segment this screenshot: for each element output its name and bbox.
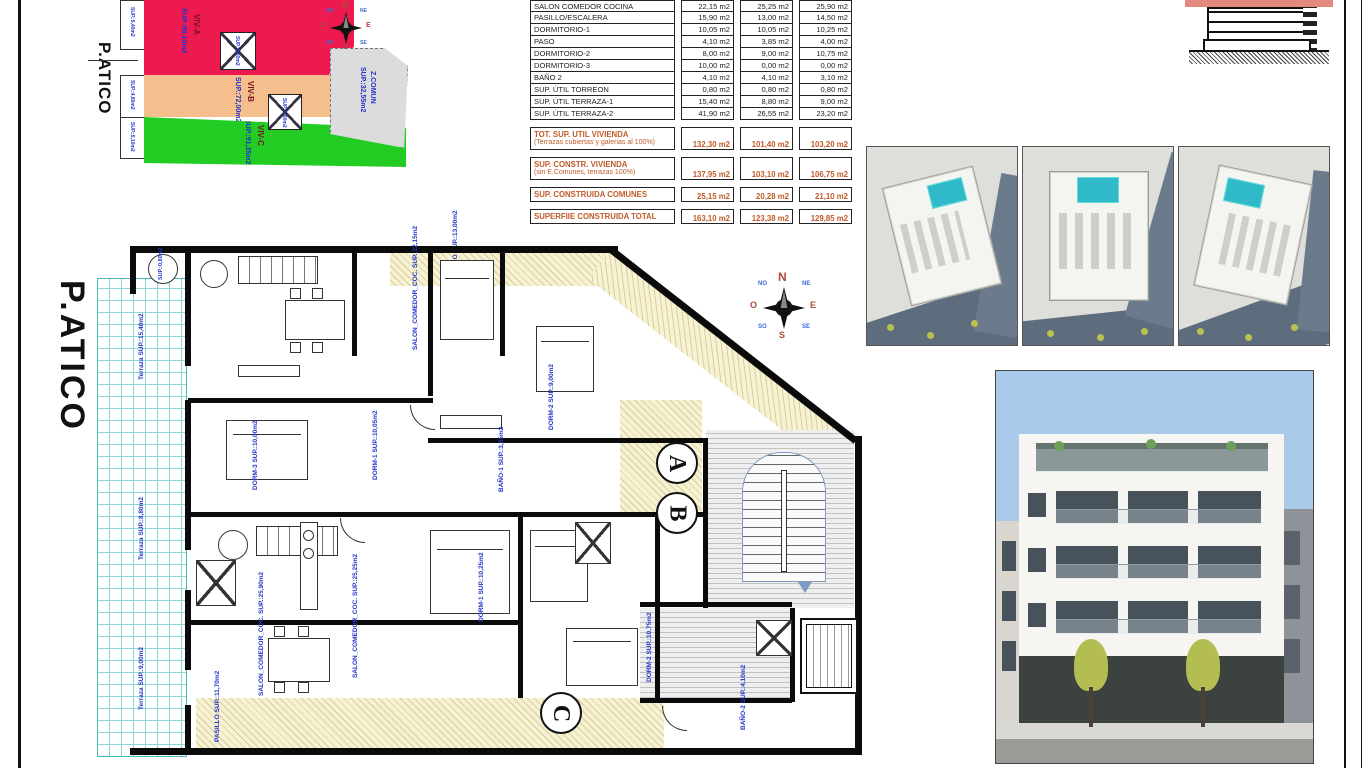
render-tree xyxy=(1047,330,1054,337)
section-floors xyxy=(1207,7,1307,43)
wall-segment xyxy=(703,438,708,608)
sheet-right-border xyxy=(1344,0,1346,768)
zone-viv-a-name: VIV-A xyxy=(192,14,201,35)
facade-tree-trunk xyxy=(1089,687,1093,727)
section-atico-highlight xyxy=(1185,0,1333,7)
zone-viv-a-sup: SUP.:98,10m2 xyxy=(180,8,187,53)
room-label: SALON_COMEDOR_COC. SUP.:22,15m2 xyxy=(412,226,419,350)
bed-icon xyxy=(226,420,308,480)
terrace-label: Terraza SUP.:15,40m2 xyxy=(138,313,145,380)
table-row: SUP. ÚTIL TORREON0,80 m20,80 m20,80 m2 xyxy=(530,84,852,96)
summary-value: 129,85 m2 xyxy=(799,209,852,224)
torreon-label: SUP.:0,80m2 xyxy=(158,247,164,280)
unit-mark-a: A xyxy=(656,442,698,484)
unit-mark-c: C xyxy=(540,692,582,734)
compass-n: N xyxy=(342,0,349,10)
zone-viv-b-sup: SUP.:72,00m2 xyxy=(234,77,241,122)
plan-sheet: P.ATICO SUP.:5,40m2 SUP.:4,80m2 SUP.:5,1… xyxy=(0,0,1366,768)
row-value: 4,10 m2 xyxy=(681,72,734,84)
summary-value: 103,10 m2 xyxy=(740,157,793,180)
wall-segment xyxy=(188,398,433,403)
wall-segment xyxy=(130,246,136,294)
table-row: DORMITORIO-310,00 m20,00 m20,00 m2 xyxy=(530,60,852,72)
bed-icon xyxy=(536,326,594,392)
edge-strip: SUP.:5,40m2 xyxy=(120,0,146,50)
row-value: 10,75 m2 xyxy=(799,48,852,60)
edge-strip: SUP.:4,80m2 xyxy=(120,75,146,119)
bed-icon xyxy=(566,628,638,686)
summary-note: (sin E.Comunes, terrazas 100%) xyxy=(534,169,671,177)
table-row: DORMITORIO-110,05 m210,05 m210,25 m2 xyxy=(530,24,852,36)
summary-row: TOT. SUP. UTIL VIVIENDA(Terrazas cubiert… xyxy=(530,127,852,150)
summary-name: SUP. CONSTR. VIVIENDA(sin E.Comunes, ter… xyxy=(530,157,675,180)
zone-comun-name: Z.COMUN xyxy=(369,71,376,104)
edge-strip: SUP.:5,10m2 xyxy=(120,117,146,159)
summary-value: 106,75 m2 xyxy=(799,157,852,180)
bed-icon xyxy=(440,260,494,340)
sofa-icon xyxy=(238,256,318,284)
facade-tree xyxy=(1186,639,1220,691)
shower-icon xyxy=(756,620,792,656)
render-tree xyxy=(1141,328,1148,335)
summary-note: (Terrazas cubiertas y galerias al 100%) xyxy=(534,139,671,147)
row-value: 23,20 m2 xyxy=(799,108,852,120)
table-row: PASILLO/ESCALERA15,90 m213,00 m214,50 m2 xyxy=(530,12,852,24)
sheet-right-border-2 xyxy=(1361,0,1362,768)
torreon-icon: SUP.:0,80m2 xyxy=(220,32,256,70)
door-arc xyxy=(340,518,365,543)
room-label: BAÑO-2 SUP.:4,10m2 xyxy=(740,665,747,730)
elevator-cabin xyxy=(806,624,852,688)
wall-segment xyxy=(130,246,618,253)
wall-segment xyxy=(185,400,191,550)
room-label: DORM-3 SUP.:10,00m2 xyxy=(252,420,259,490)
torreon-label: SUP.:0,80m2 xyxy=(281,98,287,128)
row-value: 26,55 m2 xyxy=(740,108,793,120)
wall-segment xyxy=(185,705,191,755)
door-arc xyxy=(662,706,687,731)
summary-row: SUP. CONSTR. VIVIENDA(sin E.Comunes, ter… xyxy=(530,157,852,180)
render-tree xyxy=(1097,334,1104,341)
row-name: SALON COMEDOR COCINA xyxy=(530,0,675,12)
wall-segment xyxy=(428,246,433,396)
row-value: 0,80 m2 xyxy=(799,84,852,96)
summary-row: SUPERFIIE CONSTRUIDA TOTAL 163,10 m2123,… xyxy=(530,209,852,224)
building-section-thumb xyxy=(1185,0,1333,62)
row-value: 4,00 m2 xyxy=(799,36,852,48)
terrace-label: Terraza SUP.:8,80m2 xyxy=(138,497,145,560)
plan-title: P.ATICO xyxy=(52,280,91,432)
stairs-stringer xyxy=(781,470,787,572)
washbasin-icon xyxy=(440,415,502,429)
elevator xyxy=(800,618,858,694)
room-label: BAÑO-1 SUP.:3,85m2 xyxy=(498,427,505,492)
row-value: 0,80 m2 xyxy=(740,84,793,96)
row-value: 13,00 m2 xyxy=(740,12,793,24)
row-value: 3,85 m2 xyxy=(740,36,793,48)
wall-segment xyxy=(640,602,792,607)
wall-segment xyxy=(655,512,660,702)
row-value: 0,00 m2 xyxy=(799,60,852,72)
summary-title: TOT. SUP. UTIL VIVIENDA xyxy=(534,130,671,139)
zone-viv-c-name: VIV-C xyxy=(256,125,265,146)
row-name: PASILLO/ESCALERA xyxy=(530,12,675,24)
wall-segment xyxy=(428,438,706,443)
zone-comun: Z.COMUN SUP.:32,55m2 xyxy=(330,48,408,148)
compass-se: SE xyxy=(360,40,367,46)
row-value: 4,10 m2 xyxy=(740,72,793,84)
facade-tree-trunk xyxy=(1201,687,1205,727)
wall-segment xyxy=(188,512,708,517)
summary-value: 123,38 m2 xyxy=(740,209,793,224)
row-value: 15,90 m2 xyxy=(681,12,734,24)
facade-road xyxy=(996,739,1313,763)
wall-segment xyxy=(130,748,862,755)
row-value: 8,80 m2 xyxy=(740,96,793,108)
wall-segment xyxy=(855,436,862,755)
edge-strip-label: SUP.:5,40m2 xyxy=(129,7,135,37)
table-row: PASO4,10 m23,85 m24,00 m2 xyxy=(530,36,852,48)
summary-value: 132,30 m2 xyxy=(681,127,734,150)
render-tree xyxy=(971,320,978,327)
shower-icon xyxy=(575,522,611,564)
facade-sidewalk xyxy=(996,723,1313,739)
section-ground-hatch xyxy=(1189,50,1329,64)
facade-tree xyxy=(1074,639,1108,691)
summary-value: 21,10 m2 xyxy=(799,187,852,202)
compass-ne: NE xyxy=(360,8,367,14)
unit-mark-b: B xyxy=(656,492,698,534)
summary-name: SUPERFIIE CONSTRUIDA TOTAL xyxy=(530,209,675,224)
summary-row: SUP. CONSTRUIDA COMUNES 25,15 m220,28 m2… xyxy=(530,187,852,202)
compass-no: NO xyxy=(326,8,334,14)
tv-bench-icon xyxy=(238,365,300,377)
row-value: 9,00 m2 xyxy=(740,48,793,60)
row-value: 0,00 m2 xyxy=(740,60,793,72)
render-tree xyxy=(1245,334,1252,341)
summary-value: 163,10 m2 xyxy=(681,209,734,224)
terrace-label: Terraza SUP.:9,00m2 xyxy=(138,647,145,710)
door-arc xyxy=(410,405,435,430)
round-table-icon xyxy=(200,260,228,288)
row-value: 8,00 m2 xyxy=(681,48,734,60)
compass-e: E xyxy=(366,22,371,29)
zone-viv-b: VIV-B SUP.:72,00m2 xyxy=(144,75,354,117)
sofa-icon xyxy=(256,526,338,556)
wall-segment xyxy=(500,246,505,356)
row-value: 41,90 m2 xyxy=(681,108,734,120)
floor-plan: P.ATICO Terraza SUP.:15,40m2 Terraza SUP… xyxy=(0,230,900,768)
edge-strip-label: SUP.:5,10m2 xyxy=(129,122,135,152)
area-table: SALON COMEDOR COCINA22,15 m225,25 m225,9… xyxy=(530,0,852,224)
row-name: DORMITORIO-2 xyxy=(530,48,675,60)
render-roof-detail xyxy=(1059,213,1135,269)
row-value: 10,00 m2 xyxy=(681,60,734,72)
row-value: 3,10 m2 xyxy=(799,72,852,84)
row-name: PASO xyxy=(530,36,675,48)
render-tree xyxy=(927,332,934,339)
summary-title: SUPERFIIE CONSTRUIDA TOTAL xyxy=(534,212,671,221)
table-row: SUP. ÚTIL TERRAZA-241,90 m226,55 m223,20… xyxy=(530,108,852,120)
summary-title: SUP. CONSTR. VIVIENDA xyxy=(534,160,671,169)
room-label: SALON_COMEDOR_COC. SUP.:25,90m2 xyxy=(258,572,265,696)
room-label: SALON_COMEDOR_COC. SUP.:25,25m2 xyxy=(352,554,359,678)
row-value: 25,90 m2 xyxy=(799,0,852,12)
wall-segment xyxy=(352,246,357,356)
room-label: DORM-2 SUP.:10,75m2 xyxy=(646,612,653,682)
dining-table-icon xyxy=(268,638,330,682)
render-aerial-3 xyxy=(1178,146,1330,346)
summary-value: 25,15 m2 xyxy=(681,187,734,202)
row-value: 4,10 m2 xyxy=(681,36,734,48)
row-name: BAÑO 2 xyxy=(530,72,675,84)
room-label: DORM-1 SUP.:10,25m2 xyxy=(478,552,485,622)
wall-segment xyxy=(640,698,792,703)
facade-ground-floor xyxy=(1019,656,1284,723)
row-name: DORMITORIO-1 xyxy=(530,24,675,36)
stairs-down-arrow-icon xyxy=(798,582,812,593)
row-value: 0,80 m2 xyxy=(681,84,734,96)
site-key-plan: P.ATICO SUP.:5,40m2 SUP.:4,80m2 SUP.:5,1… xyxy=(20,0,440,185)
row-value: 10,05 m2 xyxy=(740,24,793,36)
table-row: BAÑO 24,10 m24,10 m23,10 m2 xyxy=(530,72,852,84)
render-tree xyxy=(1291,324,1298,331)
row-name: DORMITORIO-3 xyxy=(530,60,675,72)
row-value: 25,25 m2 xyxy=(740,0,793,12)
pasillo-hatch-bottom xyxy=(196,698,664,748)
table-row: SALON COMEDOR COCINA22,15 m225,25 m225,9… xyxy=(530,0,852,12)
summary-value: 20,28 m2 xyxy=(740,187,793,202)
summary-value: 137,95 m2 xyxy=(681,157,734,180)
render-pool xyxy=(1077,177,1119,203)
row-value: 22,15 m2 xyxy=(681,0,734,12)
pasillo-label: PASILLO SUP.:11,70m2 xyxy=(214,671,221,742)
table-row: DORMITORIO-28,00 m29,00 m210,75 m2 xyxy=(530,48,852,60)
row-value: 14,50 m2 xyxy=(799,12,852,24)
leader-line xyxy=(88,60,138,61)
wall-segment xyxy=(518,512,523,698)
dining-table-icon xyxy=(285,300,345,340)
room-label: DORM-1 SUP.:10,05m2 xyxy=(372,410,379,480)
round-table-icon xyxy=(218,530,248,560)
zone-viv-b-name: VIV-B xyxy=(246,81,255,102)
summary-value: 101,40 m2 xyxy=(740,127,793,150)
compass-so: SO xyxy=(326,40,333,46)
wall-segment xyxy=(185,246,191,366)
torreon-label: SUP.:0,80m2 xyxy=(234,36,240,66)
facade-render xyxy=(995,370,1314,764)
row-value: 10,05 m2 xyxy=(681,24,734,36)
zone-viv-c-sup: SUP.:91,35m2 xyxy=(244,119,251,164)
site-plan-title: P.ATICO xyxy=(94,42,114,115)
render-tree xyxy=(1197,328,1204,335)
row-name: SUP. ÚTIL TERRAZA-1 xyxy=(530,96,675,108)
summary-title: SUP. CONSTRUIDA COMUNES xyxy=(534,190,671,199)
shower-icon xyxy=(196,560,236,606)
row-value: 10,25 m2 xyxy=(799,24,852,36)
compass-small: N E S O NO NE SO SE xyxy=(320,2,372,54)
room-label: DORM-2 SUP.:9,00m2 xyxy=(548,364,555,430)
torreon-icon: SUP.:0,80m2 xyxy=(268,94,302,130)
wall-segment xyxy=(185,590,191,670)
render-aerial-2 xyxy=(1022,146,1174,346)
summary-name: SUP. CONSTRUIDA COMUNES xyxy=(530,187,675,202)
table-row: SUP. ÚTIL TERRAZA-115,40 m28,80 m29,00 m… xyxy=(530,96,852,108)
zone-comun-sup: SUP.:32,55m2 xyxy=(359,67,366,112)
double-bed-icon xyxy=(430,530,510,614)
summary-name: TOT. SUP. UTIL VIVIENDA(Terrazas cubiert… xyxy=(530,127,675,150)
row-name: SUP. ÚTIL TORREON xyxy=(530,84,675,96)
row-name: SUP. ÚTIL TERRAZA-2 xyxy=(530,108,675,120)
edge-strip-label: SUP.:4,80m2 xyxy=(129,80,135,110)
compass-s: S xyxy=(343,44,348,51)
compass-rose-icon xyxy=(330,12,362,44)
row-value: 15,40 m2 xyxy=(681,96,734,108)
row-value: 9,00 m2 xyxy=(799,96,852,108)
compass-o: O xyxy=(320,22,325,29)
summary-value: 103,20 m2 xyxy=(799,127,852,150)
